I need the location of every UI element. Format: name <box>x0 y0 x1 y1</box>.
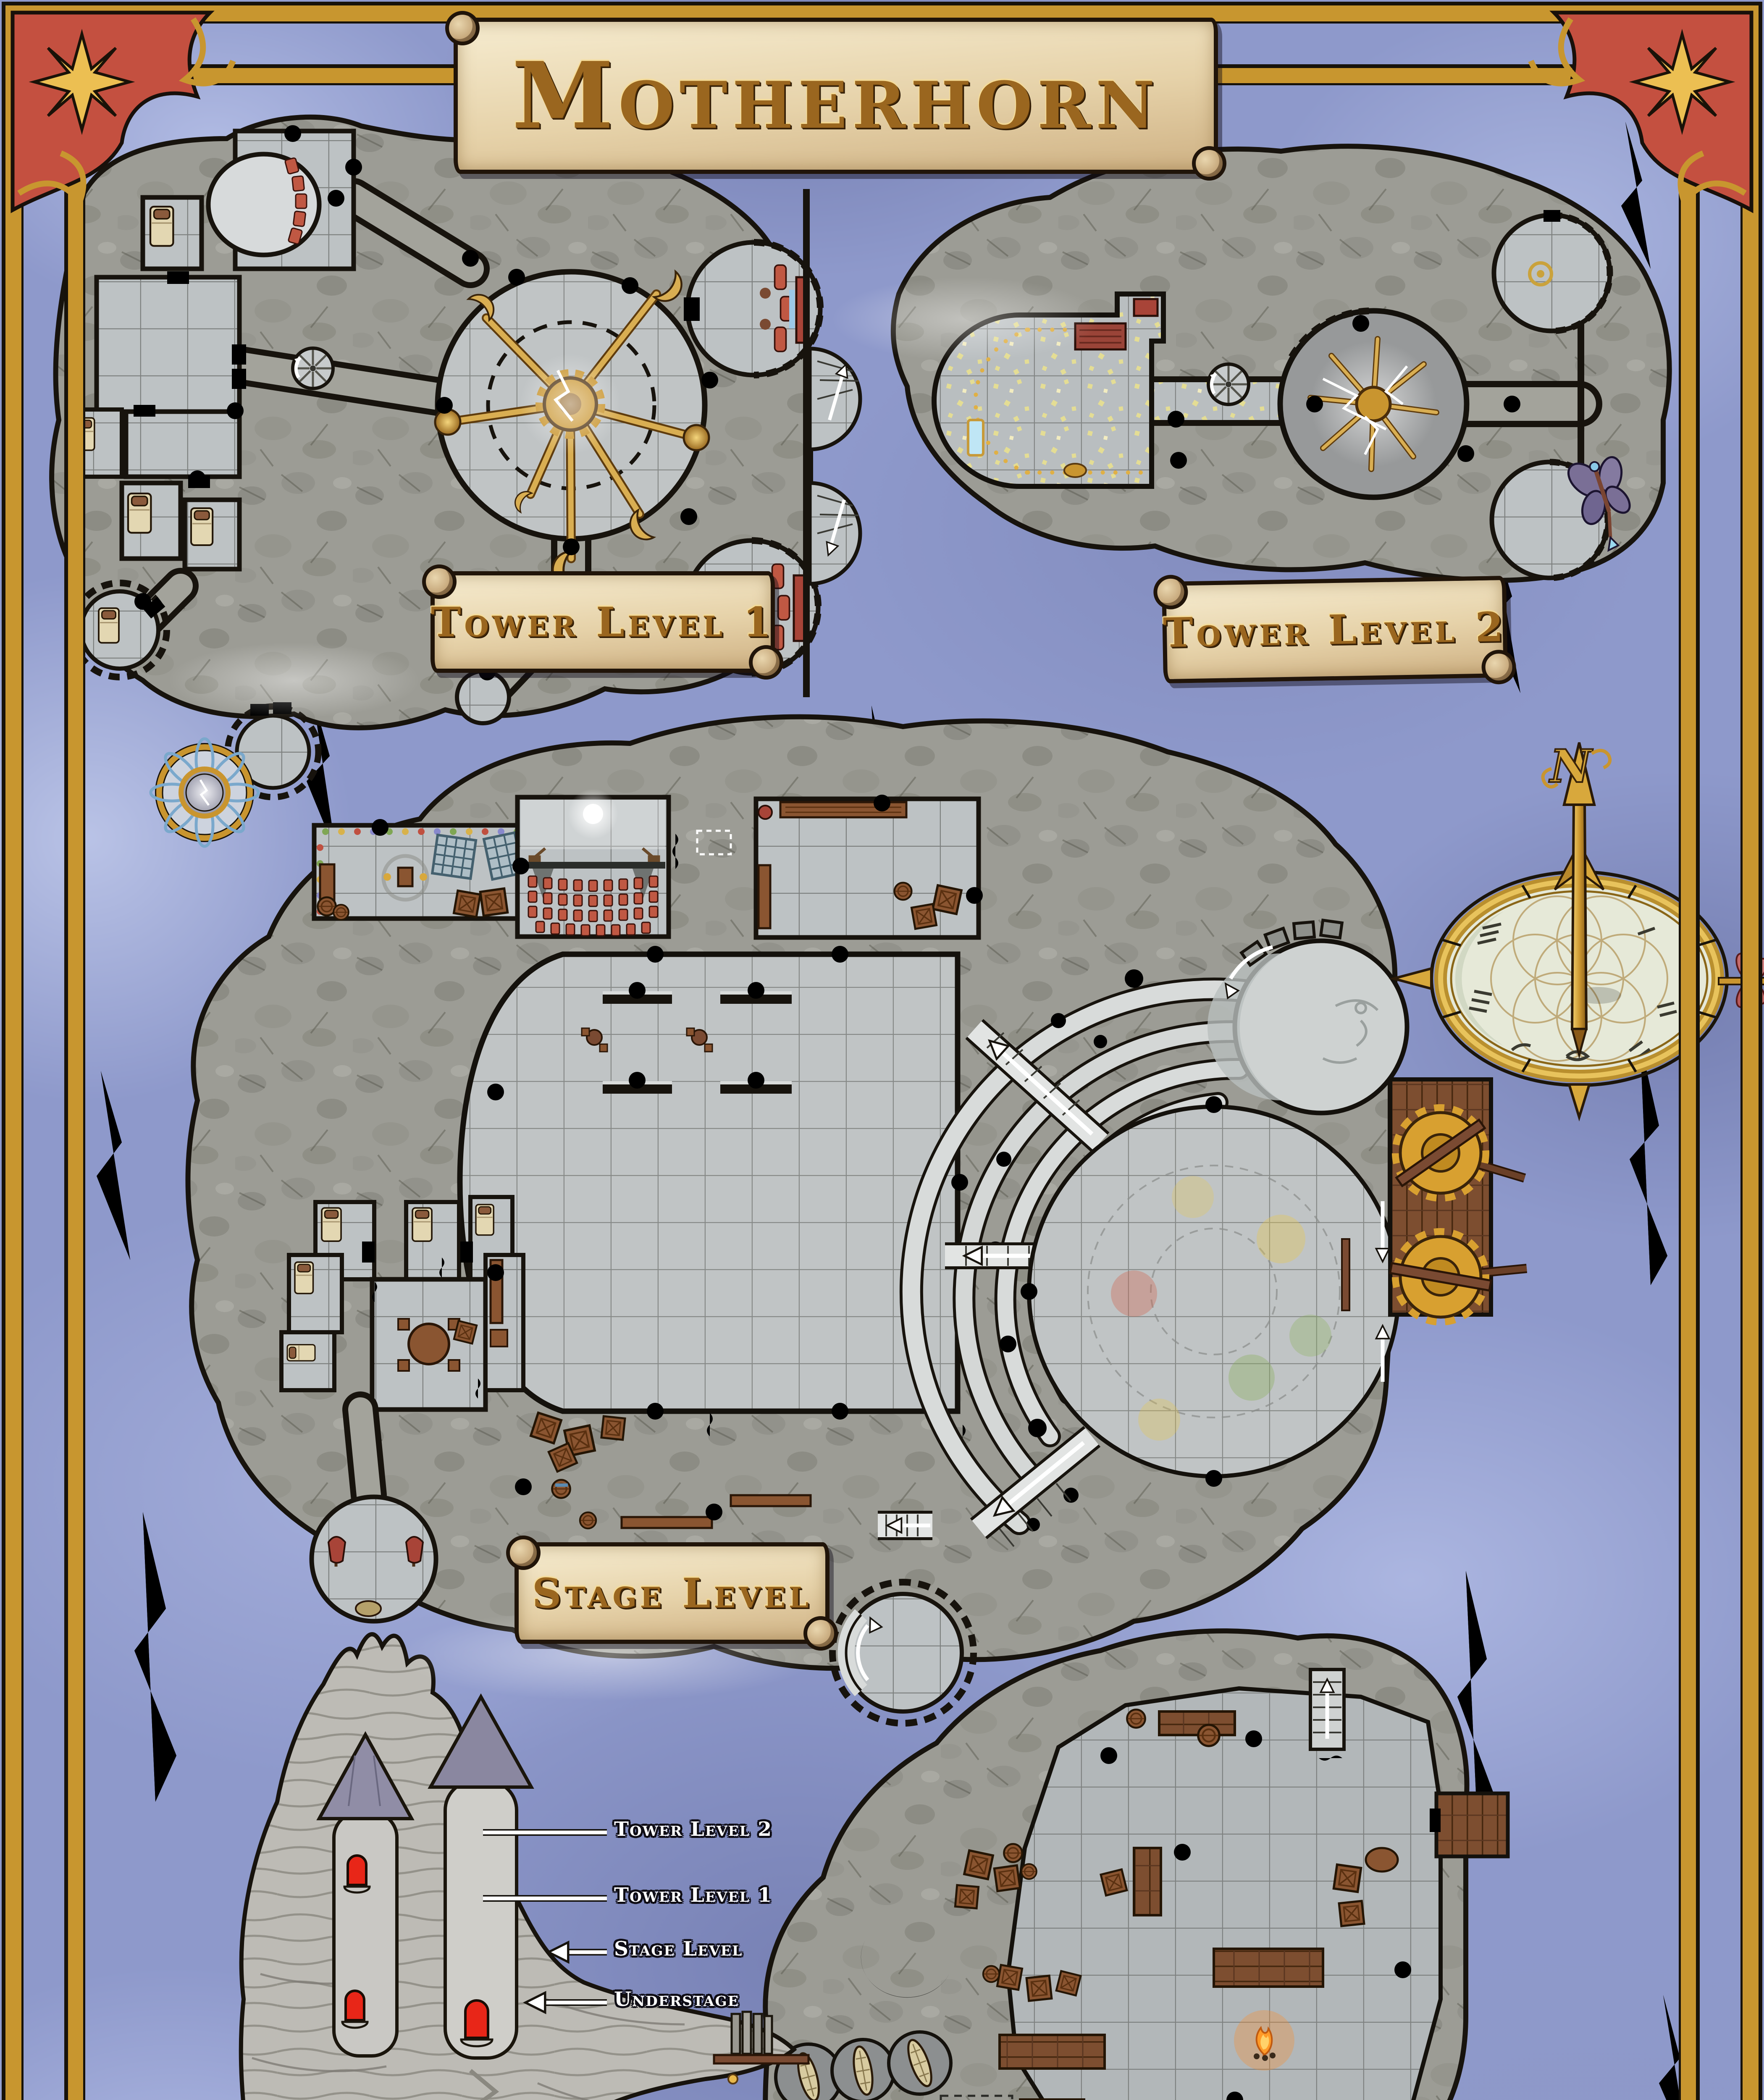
cargo-beam <box>1436 1793 1508 1856</box>
south-tower <box>832 1582 974 1723</box>
side-label-tower-level-1: Tower Level 1 <box>614 1884 772 1907</box>
spiral-staircase-icon <box>293 348 333 388</box>
side-label-stage-level: Stage Level <box>614 1937 743 1961</box>
stage-level-banner: Stage Level <box>514 1542 829 1644</box>
cliff-side-view <box>210 1634 808 2100</box>
tower-level-1-label: Tower Level 1 <box>431 598 774 646</box>
storm-portal-icon <box>151 739 258 846</box>
compass-rose: N <box>1394 740 1764 1117</box>
tower-level-2-banner: Tower Level 2 <box>1162 576 1508 683</box>
corner-star-icon <box>34 34 130 130</box>
stairs <box>1310 1669 1344 1761</box>
stage-level-label: Stage Level <box>532 1570 812 1617</box>
stage-level-map <box>188 702 1527 1723</box>
spiral-staircase-icon <box>1208 364 1249 404</box>
motherhorn-map-poster: N <box>0 0 1764 2100</box>
stage-floor <box>460 954 958 1411</box>
tower-level-2-map <box>893 146 1669 580</box>
mirror-icon <box>968 420 983 455</box>
map-art: N <box>0 0 1764 2100</box>
title-banner: Motherhorn <box>454 18 1218 174</box>
side-label-understage: Understage <box>614 1988 739 2011</box>
poster-title: Motherhorn <box>512 42 1160 150</box>
stage-curtain <box>521 862 665 869</box>
side-label-tower-level-2: Tower Level 2 <box>614 1818 772 1841</box>
fire-icon <box>1234 2010 1294 2071</box>
tower-level-2-label: Tower Level 2 <box>1163 603 1507 656</box>
ballista-turret-icon <box>1396 1108 1525 1197</box>
tower-level-1-banner: Tower Level 1 <box>430 571 775 673</box>
